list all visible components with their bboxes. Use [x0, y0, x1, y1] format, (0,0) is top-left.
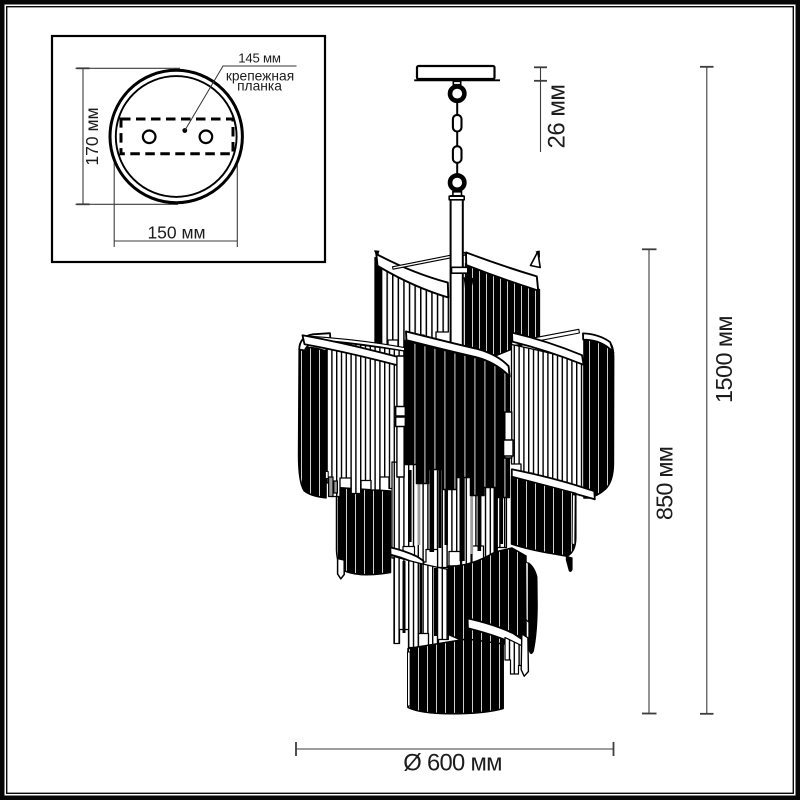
svg-text:Ø 600 мм: Ø 600 мм	[403, 750, 502, 777]
svg-text:26 мм: 26 мм	[544, 85, 571, 149]
svg-text:850 мм: 850 мм	[652, 447, 678, 520]
svg-text:1500 мм: 1500 мм	[711, 316, 737, 403]
svg-text:150 мм: 150 мм	[147, 223, 205, 243]
svg-text:планка: планка	[237, 79, 282, 94]
svg-text:145 мм: 145 мм	[238, 51, 281, 66]
svg-text:170 мм: 170 мм	[82, 107, 102, 165]
